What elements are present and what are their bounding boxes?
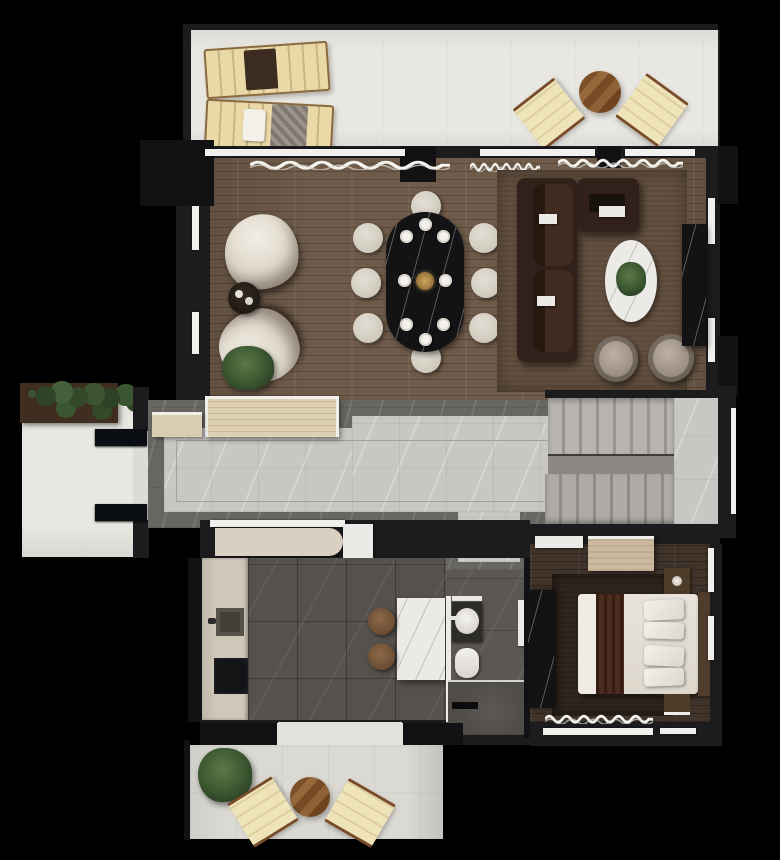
dining-chair — [351, 268, 381, 298]
curtain-wave-icon — [558, 156, 683, 168]
plate — [437, 230, 450, 243]
plate — [439, 274, 452, 287]
window-sill — [708, 548, 714, 592]
stair-upper-flight — [548, 398, 674, 454]
window-sill — [192, 206, 199, 250]
dining-chair — [469, 313, 499, 343]
plate — [398, 274, 411, 287]
wall — [133, 520, 149, 558]
faucet — [208, 618, 216, 624]
dresser — [588, 536, 654, 571]
window-sill — [708, 198, 715, 244]
hall-cabinet — [152, 412, 202, 437]
pillow — [242, 109, 266, 142]
sun-lounger — [203, 41, 330, 100]
wall-shelf — [535, 536, 583, 548]
cup — [245, 297, 253, 305]
folded-sheet — [578, 594, 596, 694]
window-sill — [543, 728, 653, 735]
kitchen-counter — [202, 558, 248, 720]
tray — [599, 206, 625, 217]
vanity — [452, 602, 482, 642]
round-table — [579, 71, 621, 113]
window-sill — [205, 149, 405, 156]
plate — [419, 218, 432, 231]
cooktop — [214, 658, 248, 694]
sink-icon — [216, 608, 244, 636]
window-sill — [708, 318, 715, 362]
kitchen-console — [215, 528, 343, 556]
bar-stool — [368, 643, 395, 670]
stair-lower-flight — [545, 474, 674, 524]
book — [537, 296, 555, 306]
blanket — [270, 104, 308, 152]
pillow — [644, 667, 685, 686]
swivel-armchair — [594, 336, 638, 382]
nightstand — [664, 694, 690, 715]
side-table — [228, 282, 260, 314]
plate — [419, 333, 432, 346]
terrace-landing — [277, 723, 403, 747]
bar-stool — [368, 608, 395, 635]
sofa-chaise — [577, 178, 639, 232]
window-sill — [660, 728, 696, 734]
dining-chair — [353, 223, 383, 253]
wardrobe — [528, 590, 554, 708]
wall — [200, 723, 277, 745]
double-bed — [578, 594, 698, 694]
window-sill — [625, 149, 695, 156]
window-sill — [192, 312, 199, 354]
shower-fixture — [452, 702, 478, 709]
pillow — [644, 621, 685, 639]
round-table — [290, 777, 330, 817]
sofa-cushion — [533, 184, 573, 266]
plate — [400, 230, 413, 243]
centerpiece — [416, 272, 434, 290]
pillow — [644, 599, 685, 621]
curtain-wave-icon — [250, 158, 450, 170]
nightstand — [664, 568, 690, 594]
vine-plant-icon — [28, 390, 36, 398]
wall — [403, 723, 463, 745]
wall — [184, 740, 190, 840]
tv-console — [682, 224, 706, 346]
lamp-icon — [672, 576, 682, 586]
cup — [235, 290, 243, 298]
towel — [244, 48, 279, 90]
window-sill — [708, 616, 714, 660]
wall-pillar — [718, 146, 738, 204]
plant-icon — [616, 262, 646, 296]
planter-box — [20, 383, 118, 423]
entry-door-leaf — [95, 504, 147, 521]
plate — [400, 318, 413, 331]
window-sill — [731, 408, 736, 514]
entry-door-leaf — [95, 429, 147, 446]
window-sill — [480, 149, 595, 156]
wall-pillar — [140, 140, 214, 206]
washbasin-icon — [455, 608, 479, 634]
faucet — [448, 616, 458, 620]
plant-icon — [222, 346, 274, 390]
hall-bench — [205, 396, 339, 437]
partition-wall — [452, 596, 482, 601]
wall — [133, 387, 149, 431]
toilet-icon — [455, 648, 479, 678]
kitchen-island — [397, 598, 445, 680]
sofa-cushion — [533, 270, 573, 352]
sofa-section — [517, 178, 577, 362]
window-sill — [210, 520, 345, 527]
floor-plan-canvas — [0, 0, 780, 860]
dining-table — [386, 212, 464, 352]
pillow — [644, 645, 685, 667]
dining-chair — [469, 223, 499, 253]
bed-runner — [596, 594, 624, 694]
stair-landing — [674, 398, 720, 524]
coffee-table — [605, 240, 657, 322]
book — [539, 214, 557, 224]
wall — [545, 390, 720, 398]
plate — [437, 318, 450, 331]
stair-stringer — [548, 454, 674, 476]
curtain-wave-icon — [545, 712, 653, 724]
wall — [188, 558, 202, 722]
door-leaf — [343, 524, 373, 558]
dining-chair — [353, 313, 383, 343]
wall — [183, 30, 191, 152]
